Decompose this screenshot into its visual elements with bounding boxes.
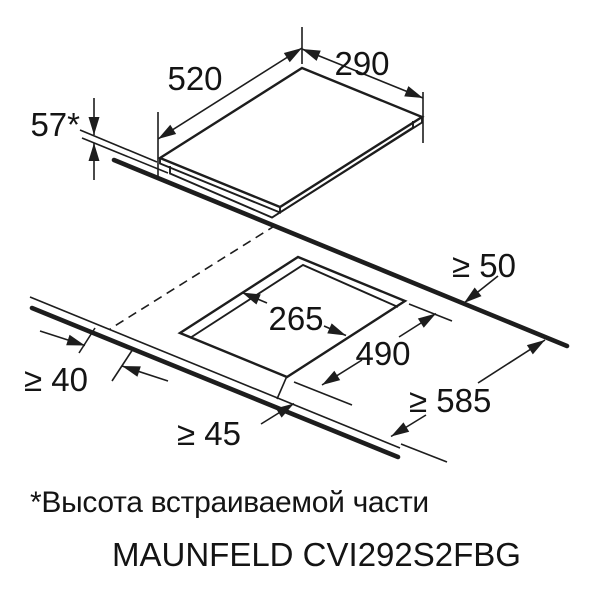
dim-label-520: 520 [167,60,222,97]
clearance-label-50: ≥ 50 [452,247,516,284]
clearance-label-45: ≥ 45 [177,415,241,452]
clearance-45-tick [277,376,287,399]
dim-label-57: 57* [30,106,80,143]
worktop-front-end-extension [401,444,447,462]
clearance-40-arrow-left [40,331,85,346]
clearance-label-40: ≥ 40 [24,361,88,398]
installation-diagram: 520 290 57* 265 490 [0,0,600,600]
dim-490-extension-lower [294,382,352,405]
dim-490-arrow-upper [399,314,436,338]
dim-label-585: ≥ 585 [409,382,491,419]
clearance-rear: ≥ 50 [452,247,516,303]
clearance-front: ≥ 45 [177,376,294,452]
dim-585-arrow-upper [478,340,545,383]
clearance-side: ≥ 40 [24,328,168,398]
dim-built-in-height: 57* [30,98,168,180]
diagram-svg: 520 290 57* 265 490 [0,0,600,600]
clearance-40-tick-right [112,349,133,381]
model-name: MAUNFELD CVI292S2FBG [112,536,521,573]
dim-label-290: 290 [334,45,389,82]
clearance-40-arrow-right [122,366,168,381]
dim-490-extension-upper [409,304,452,321]
dim-57-extension-lower [82,138,168,173]
worktop-depth-dim: ≥ 585 [391,340,545,437]
dim-label-490: 490 [355,335,410,372]
footnote-text: *Высота встраиваемой части [30,486,429,519]
dim-57-extension-upper [80,130,157,162]
dim-label-265: 265 [268,300,323,337]
